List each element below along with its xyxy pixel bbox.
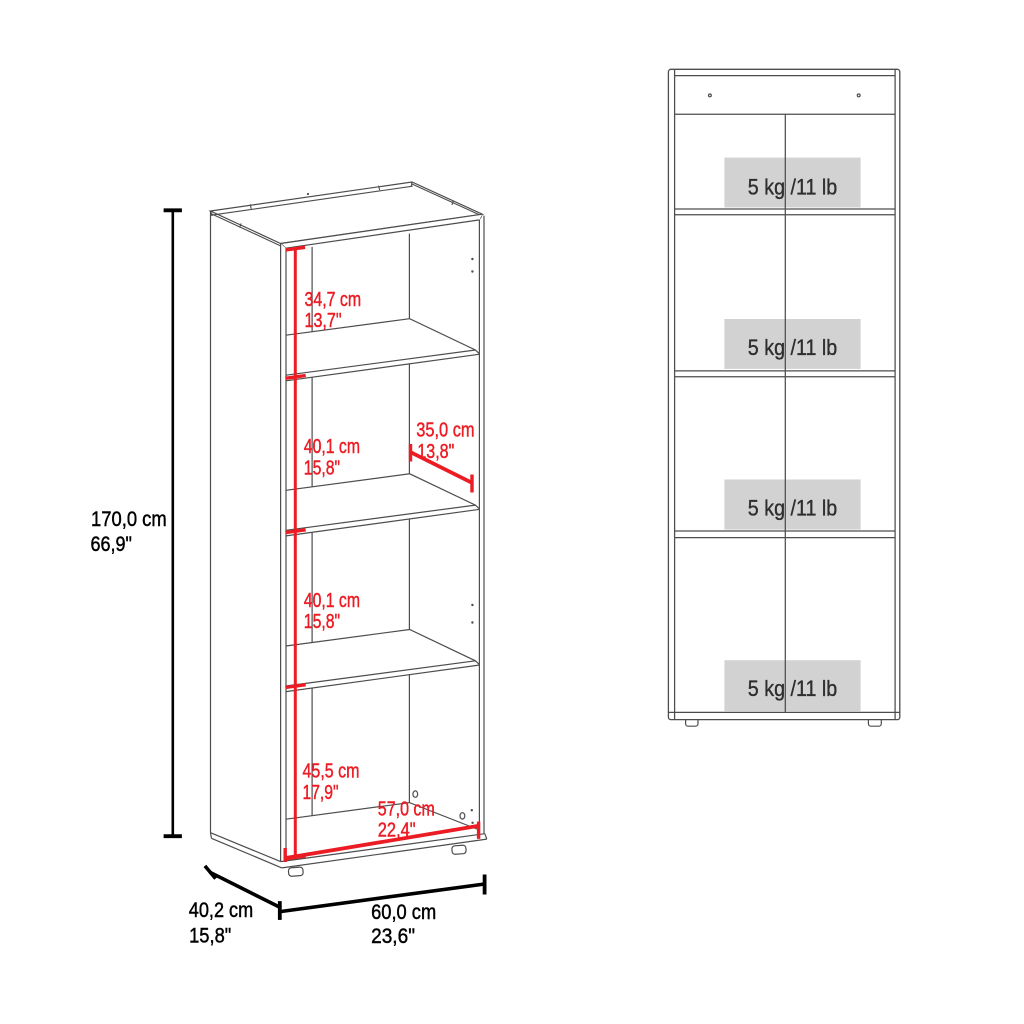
svg-text:35,0 cm: 35,0 cm [416, 419, 474, 441]
svg-text:5 kg /11 lb: 5 kg /11 lb [748, 175, 837, 200]
svg-text:15,8": 15,8" [304, 611, 340, 633]
svg-text:15,8": 15,8" [189, 925, 231, 948]
svg-text:45,5 cm: 45,5 cm [303, 760, 360, 782]
svg-text:34,7 cm: 34,7 cm [305, 289, 362, 311]
svg-text:5 kg /11 lb: 5 kg /11 lb [748, 335, 837, 360]
svg-text:15,8": 15,8" [304, 457, 340, 479]
svg-text:40,2 cm: 40,2 cm [189, 899, 253, 922]
svg-text:5 kg /11 lb: 5 kg /11 lb [748, 495, 837, 520]
svg-text:23,6": 23,6" [371, 925, 415, 948]
svg-text:40,1 cm: 40,1 cm [304, 590, 360, 612]
svg-text:5 kg /11 lb: 5 kg /11 lb [748, 676, 837, 701]
svg-text:40,1 cm: 40,1 cm [304, 436, 360, 458]
svg-text:22,4": 22,4" [378, 819, 416, 841]
svg-text:66,9": 66,9" [91, 532, 132, 556]
svg-text:57,0 cm: 57,0 cm [378, 798, 435, 820]
svg-text:60,0 cm: 60,0 cm [371, 901, 436, 924]
svg-text:170,0 cm: 170,0 cm [91, 507, 167, 531]
svg-text:17,9": 17,9" [303, 782, 339, 804]
svg-text:13,8": 13,8" [417, 441, 454, 463]
svg-text:13,7": 13,7" [305, 310, 342, 332]
